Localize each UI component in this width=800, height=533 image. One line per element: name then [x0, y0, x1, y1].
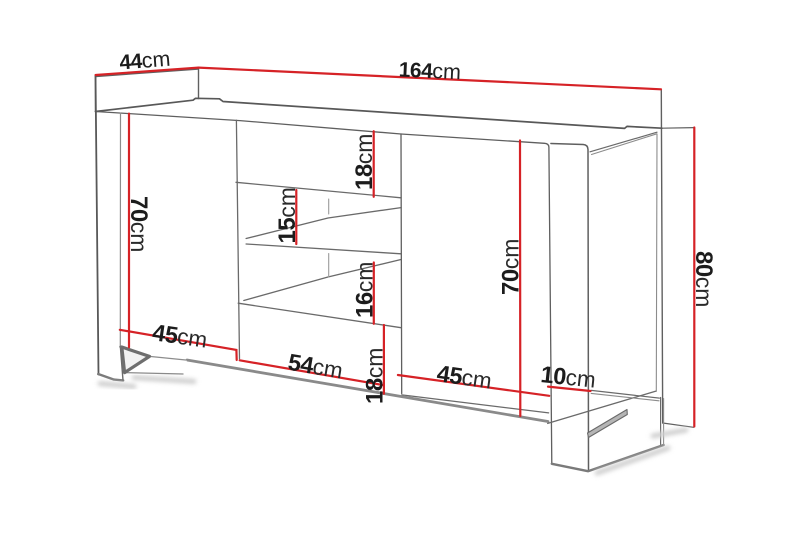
svg-text:44cm: 44cm	[119, 47, 172, 75]
svg-text:16cm: 16cm	[351, 262, 378, 318]
svg-text:18cm: 18cm	[361, 348, 388, 404]
svg-text:15cm: 15cm	[274, 187, 301, 243]
svg-text:164cm: 164cm	[398, 58, 461, 85]
svg-text:18cm: 18cm	[351, 134, 378, 190]
svg-text:70cm: 70cm	[498, 239, 525, 295]
svg-text:70cm: 70cm	[125, 196, 152, 252]
svg-text:80cm: 80cm	[690, 251, 717, 307]
